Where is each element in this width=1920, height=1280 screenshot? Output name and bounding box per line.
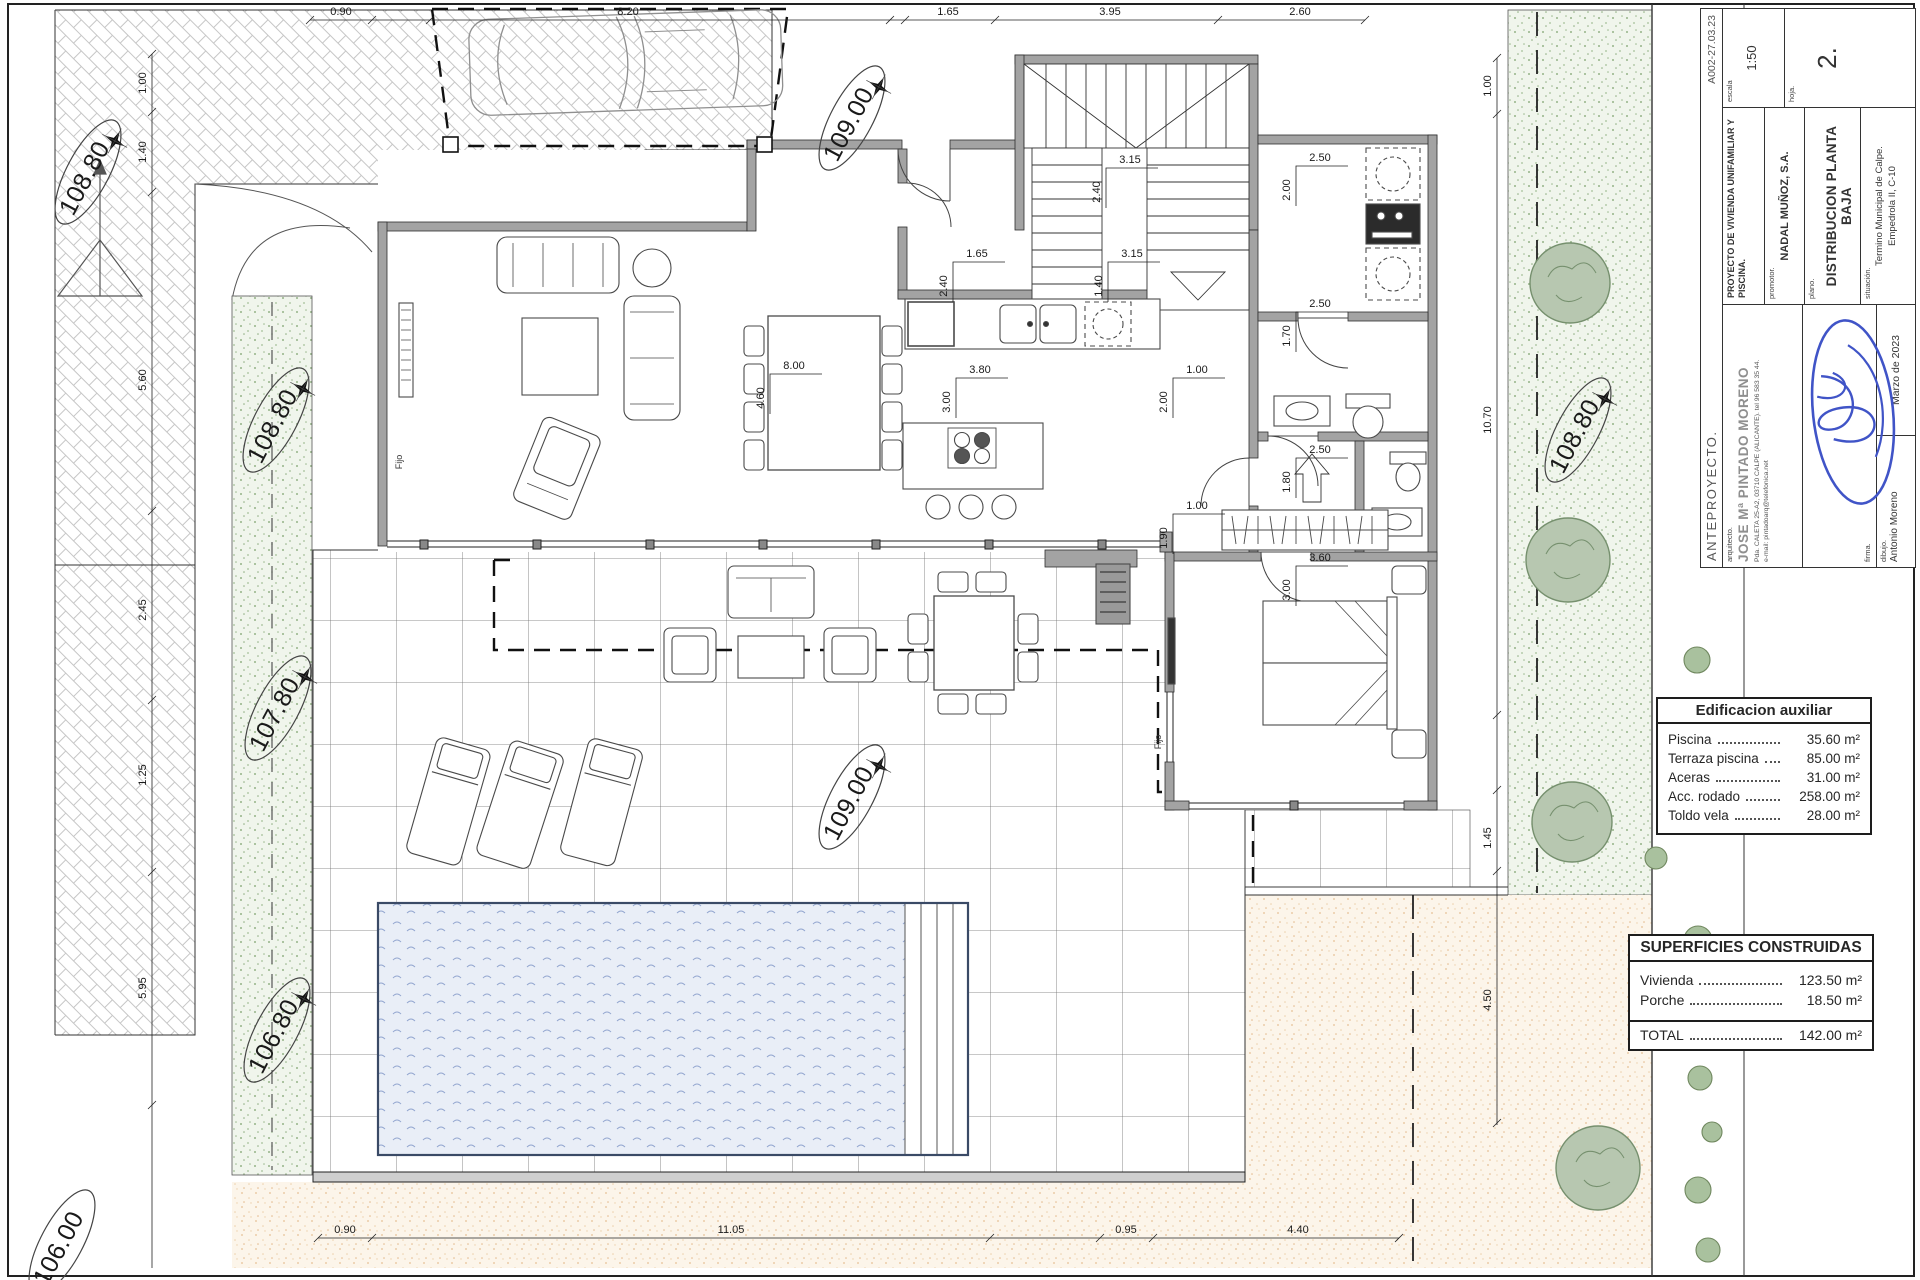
window-fixed-label: Fijo: [1153, 735, 1163, 750]
plan-sheet: 0.90 8.20 1.65 3.95 2.60 0.90 11.05 0.95…: [0, 0, 1920, 1280]
dim-label: 1.00: [1482, 75, 1494, 96]
dim-label: 8.20: [617, 6, 638, 18]
table-row: Piscina35.60 m²: [1658, 730, 1870, 749]
dim-label: 1.65: [937, 6, 958, 18]
pool: [378, 903, 968, 1155]
dim-label: 1.65: [966, 248, 987, 260]
table-row: Terraza piscina85.00 m²: [1658, 749, 1870, 768]
dim-label: 1.00: [1186, 500, 1207, 512]
dim-label: 3.80: [969, 364, 990, 376]
dim-label: 0.90: [330, 6, 351, 18]
dim-label: 2.60: [1289, 6, 1310, 18]
built-table-title: SUPERFICIES CONSTRUIDAS: [1630, 936, 1872, 962]
table-row: Aceras31.00 m²: [1658, 768, 1870, 787]
scale-value: 1:50: [1744, 14, 1759, 102]
nightstand: [1392, 566, 1426, 594]
dim-label: 2.50: [1309, 152, 1330, 164]
dining-table: [768, 316, 880, 470]
outdoor-coffee-table: [738, 636, 804, 678]
coffee-table: [522, 318, 598, 395]
canopy-post: [757, 137, 772, 152]
fridge: [908, 302, 954, 346]
dim-label: 4.40: [1287, 1224, 1308, 1236]
side-table-round: [633, 249, 671, 287]
dim-label: 8.00: [783, 360, 804, 372]
dim-label: 0.95: [1115, 1224, 1136, 1236]
table-row: Vivienda123.50 m²: [1630, 970, 1872, 990]
location-line-2: Empedrola II, C-10: [1887, 113, 1898, 299]
architect-name: JOSE Mª PINTADO MORENO: [1736, 310, 1751, 562]
dim-label: 1.45: [1482, 827, 1494, 848]
dim-label: 2.00: [1281, 179, 1293, 200]
sheet-number: 2.: [1812, 14, 1843, 102]
dim-label: 5.60: [137, 369, 149, 390]
location-line-1: Termino Municipal de Calpe.: [1874, 113, 1885, 299]
dim-label: 1.80: [1281, 471, 1293, 492]
promoter-name: NADAL MUÑOZ, S.A.: [1779, 113, 1791, 299]
dim-label: 1.70: [1281, 325, 1293, 346]
dim-label: 2.00: [1158, 391, 1170, 412]
outdoor-dining-table: [934, 596, 1014, 690]
dim-label: 2.45: [137, 599, 149, 620]
table-row: Porche18.50 m²: [1630, 990, 1872, 1010]
dim-label: 3.95: [1099, 6, 1120, 18]
canopy-post: [443, 137, 458, 152]
dim-label: 3.00: [941, 391, 953, 412]
signature: [1791, 307, 1909, 517]
architect-email: e-mail: pintadoarq@telefonica.net: [1763, 310, 1772, 562]
dim-label: 2.40: [938, 275, 950, 296]
signature-cell: firma.: [1803, 305, 1876, 567]
hob: [948, 428, 996, 468]
dim-label: 2.50: [1309, 444, 1330, 456]
scale-cell: escala 1:50: [1723, 9, 1785, 107]
title-block: ANTEPROYECTO. A002-27.03.23 arquitecto. …: [1700, 8, 1916, 568]
dim-label: 1.00: [137, 72, 149, 93]
bed: [1263, 601, 1387, 663]
dim-label: 11.05: [718, 1224, 745, 1236]
bedroom-tv: [1168, 618, 1175, 684]
dim-label: 1.25: [137, 764, 149, 785]
aux-areas-table: Edificacion auxiliar Piscina35.60 m² Ter…: [1656, 697, 1872, 835]
dim-label: 2.50: [1309, 298, 1330, 310]
dim-label: 5.95: [137, 977, 149, 998]
dim-label: 1.90: [1158, 527, 1170, 548]
dim-label: 3.00: [1281, 579, 1293, 600]
dim-label: 3.15: [1119, 154, 1140, 166]
dim-label: 4.50: [1482, 989, 1494, 1010]
table-row: Toldo vela28.00 m²: [1658, 806, 1870, 825]
plan-name-cell: plano. DISTRIBUCION PLANTA BAJA: [1805, 108, 1861, 304]
bbq: [1096, 564, 1130, 624]
dim-label: 4.60: [755, 387, 767, 408]
table-total-row: TOTAL142.00 m²: [1630, 1020, 1872, 1049]
architect-address: Pda. CALETA 25-A2, 03710 CALPE (ALICANTE…: [1754, 310, 1763, 562]
phase-label: ANTEPROYECTO.: [1704, 430, 1719, 561]
dim-label: 0.90: [334, 1224, 355, 1236]
built-areas-table: SUPERFICIES CONSTRUIDAS Vivienda123.50 m…: [1628, 934, 1874, 1051]
bar-stool: [926, 495, 950, 519]
dim-label: 2.40: [1091, 181, 1103, 202]
sofa-three-seat: [497, 237, 619, 293]
window-fixed-label: Fijo: [394, 455, 404, 470]
dim-label: 1.40: [1093, 275, 1105, 296]
dim-label: 1.40: [137, 141, 149, 162]
dim-label: 3.60: [1309, 552, 1330, 564]
dim-label: 10.70: [1482, 406, 1494, 434]
toilet-2: [1396, 463, 1420, 491]
dim-label: 3.15: [1121, 248, 1142, 260]
plan-name: DISTRIBUCION PLANTA BAJA: [1824, 113, 1854, 299]
floor-plan-drawing: 0.90 8.20 1.65 3.95 2.60 0.90 11.05 0.95…: [0, 0, 1920, 1280]
drawing-code: A002-27.03.23: [1706, 15, 1718, 84]
title-block-top-strip: ANTEPROYECTO. A002-27.03.23: [1701, 9, 1723, 567]
table-row: Acc. rodado258.00 m²: [1658, 787, 1870, 806]
location-cell: situación. Termino Municipal de Calpe. E…: [1861, 108, 1915, 304]
sheet-number-cell: hoja. 2.: [1785, 9, 1915, 107]
promoter-cell: promotor. NADAL MUÑOZ, S.A.: [1765, 108, 1805, 304]
aux-table-title: Edificacion auxiliar: [1658, 699, 1870, 724]
dim-label: 1.00: [1186, 364, 1207, 376]
project-title: PROYECTO DE VIVIENDA UNIFAMILIAR Y PISCI…: [1723, 108, 1765, 304]
sand-zone-right: [1245, 895, 1652, 1268]
